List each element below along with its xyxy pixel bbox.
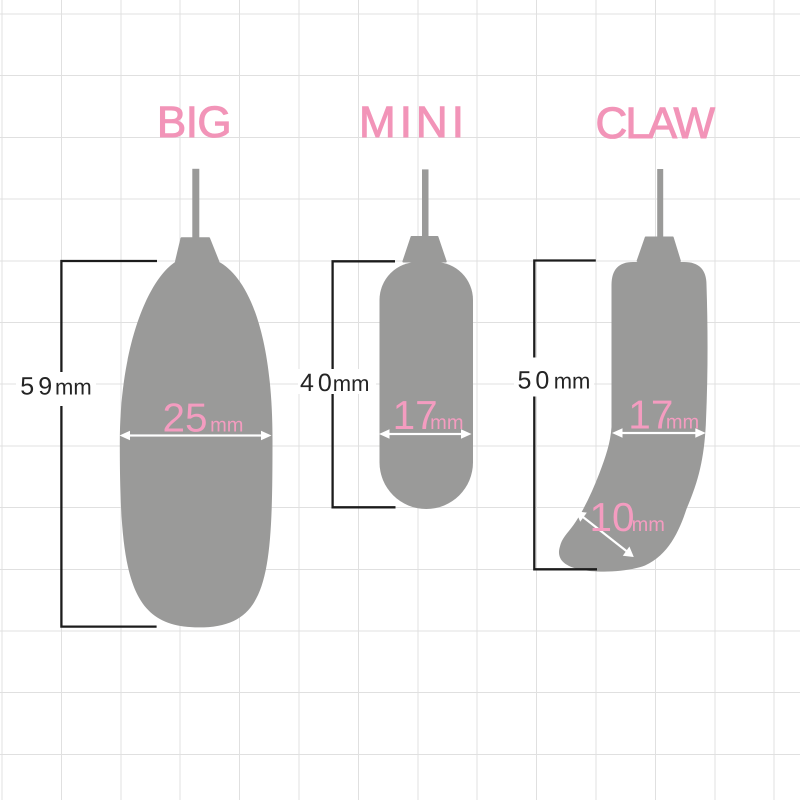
- svg-text:mm: mm: [55, 375, 92, 400]
- svg-text:BIG: BIG: [157, 98, 231, 147]
- svg-text:MINI: MINI: [359, 98, 468, 147]
- svg-text:40: 40: [300, 369, 336, 397]
- svg-text:mm: mm: [333, 371, 370, 396]
- svg-text:59: 59: [20, 373, 56, 401]
- svg-text:CLAW: CLAW: [596, 99, 716, 148]
- svg-text:mm: mm: [554, 369, 591, 394]
- svg-text:50: 50: [518, 367, 554, 395]
